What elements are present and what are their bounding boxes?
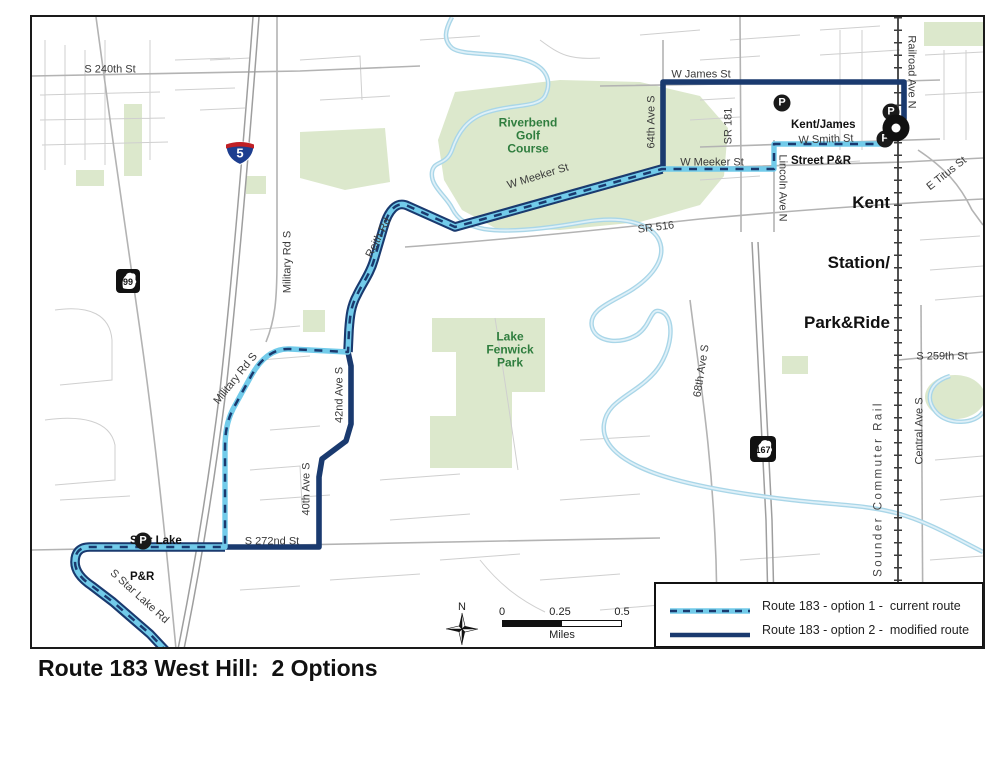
poi-line: P&R xyxy=(130,571,182,583)
scale-unit-label: Miles xyxy=(549,629,575,641)
street-label-40th-ave-s: 40th Ave S xyxy=(302,462,313,515)
shield-number: 167 xyxy=(750,445,776,455)
legend-box: Route 183 - option 1 - current route Rou… xyxy=(654,582,984,648)
street-label-railroad-ave-n: Railroad Ave N xyxy=(906,35,917,108)
street-label-s-272nd-st: S 272nd St xyxy=(245,537,299,548)
sr-99-shield-icon: 99 xyxy=(116,269,140,293)
park-and-ride-icon-star-lake: P xyxy=(135,533,152,550)
map-canvas: S 240th St W James St Railroad Ave N 64t… xyxy=(30,15,985,649)
street-label-s-240th-st: S 240th St xyxy=(84,65,135,76)
street-label-s-259th-st: S 259th St xyxy=(916,352,967,363)
poi-label-star-lake-pr: Star Lake P&R xyxy=(130,511,182,607)
poi-line: Park&Ride xyxy=(790,313,890,333)
park-label-lake-fenwick-park: Lake Fenwick Park xyxy=(486,331,533,370)
interstate-5-shield-icon: 5 xyxy=(224,139,256,166)
compass-rose-icon xyxy=(444,611,480,647)
scale-tick-05: 0.5 xyxy=(614,606,629,618)
legend-line-option1 xyxy=(670,607,750,615)
street-label-sr-181: SR 181 xyxy=(724,108,735,145)
poi-label-kent-station-park-and-ride: Kent Station/ Park&Ride xyxy=(790,153,890,373)
legend-label-option2: Route 183 - option 2 - modified route xyxy=(762,623,969,637)
scale-bar-filled-half xyxy=(503,621,562,626)
sr-167-shield-icon: 167 xyxy=(750,436,776,462)
shield-number: 99 xyxy=(116,277,140,287)
street-label-central-ave-s: Central Ave S xyxy=(915,397,926,464)
legend-sample-option2 xyxy=(670,626,750,634)
street-label-military-rd-s-north: Military Rd S xyxy=(283,231,294,293)
map-title: Route 183 West Hill: 2 Options xyxy=(38,655,378,682)
street-label-sounder-commuter-rail: Sounder Commuter Rail xyxy=(874,401,885,577)
poi-line: Kent/James xyxy=(791,119,856,131)
street-label-w-james-st: W James St xyxy=(671,70,730,81)
shield-number: 5 xyxy=(224,146,256,161)
legend-row-option2: Route 183 - option 2 - modified route xyxy=(670,620,969,640)
legend-sample-option1 xyxy=(670,602,750,610)
legend-row-option1: Route 183 - option 1 - current route xyxy=(670,596,961,616)
scale-tick-025: 0.25 xyxy=(549,606,570,618)
route-183-map-page: S 240th St W James St Railroad Ave N 64t… xyxy=(0,0,999,772)
street-label-lincoln-ave-n: Lincoln Ave N xyxy=(777,154,788,221)
street-label-42nd-ave-s: 42nd Ave S xyxy=(335,367,346,423)
poi-line: Station/ xyxy=(790,253,890,273)
street-label-w-meeker-st-east: W Meeker St xyxy=(680,158,744,169)
park-label-riverbend-golf-course: Riverbend Golf Course xyxy=(499,117,558,156)
scale-bar xyxy=(502,620,622,627)
kent-station-marker xyxy=(883,115,910,142)
poi-line: Kent xyxy=(790,193,890,213)
park-and-ride-icon-kent-james: P xyxy=(774,95,791,112)
street-label-64th-ave-s: 64th Ave S xyxy=(647,95,658,148)
legend-label-option1: Route 183 - option 1 - current route xyxy=(762,599,961,613)
scale-tick-0: 0 xyxy=(499,606,505,618)
legend-line-option2 xyxy=(670,631,750,639)
